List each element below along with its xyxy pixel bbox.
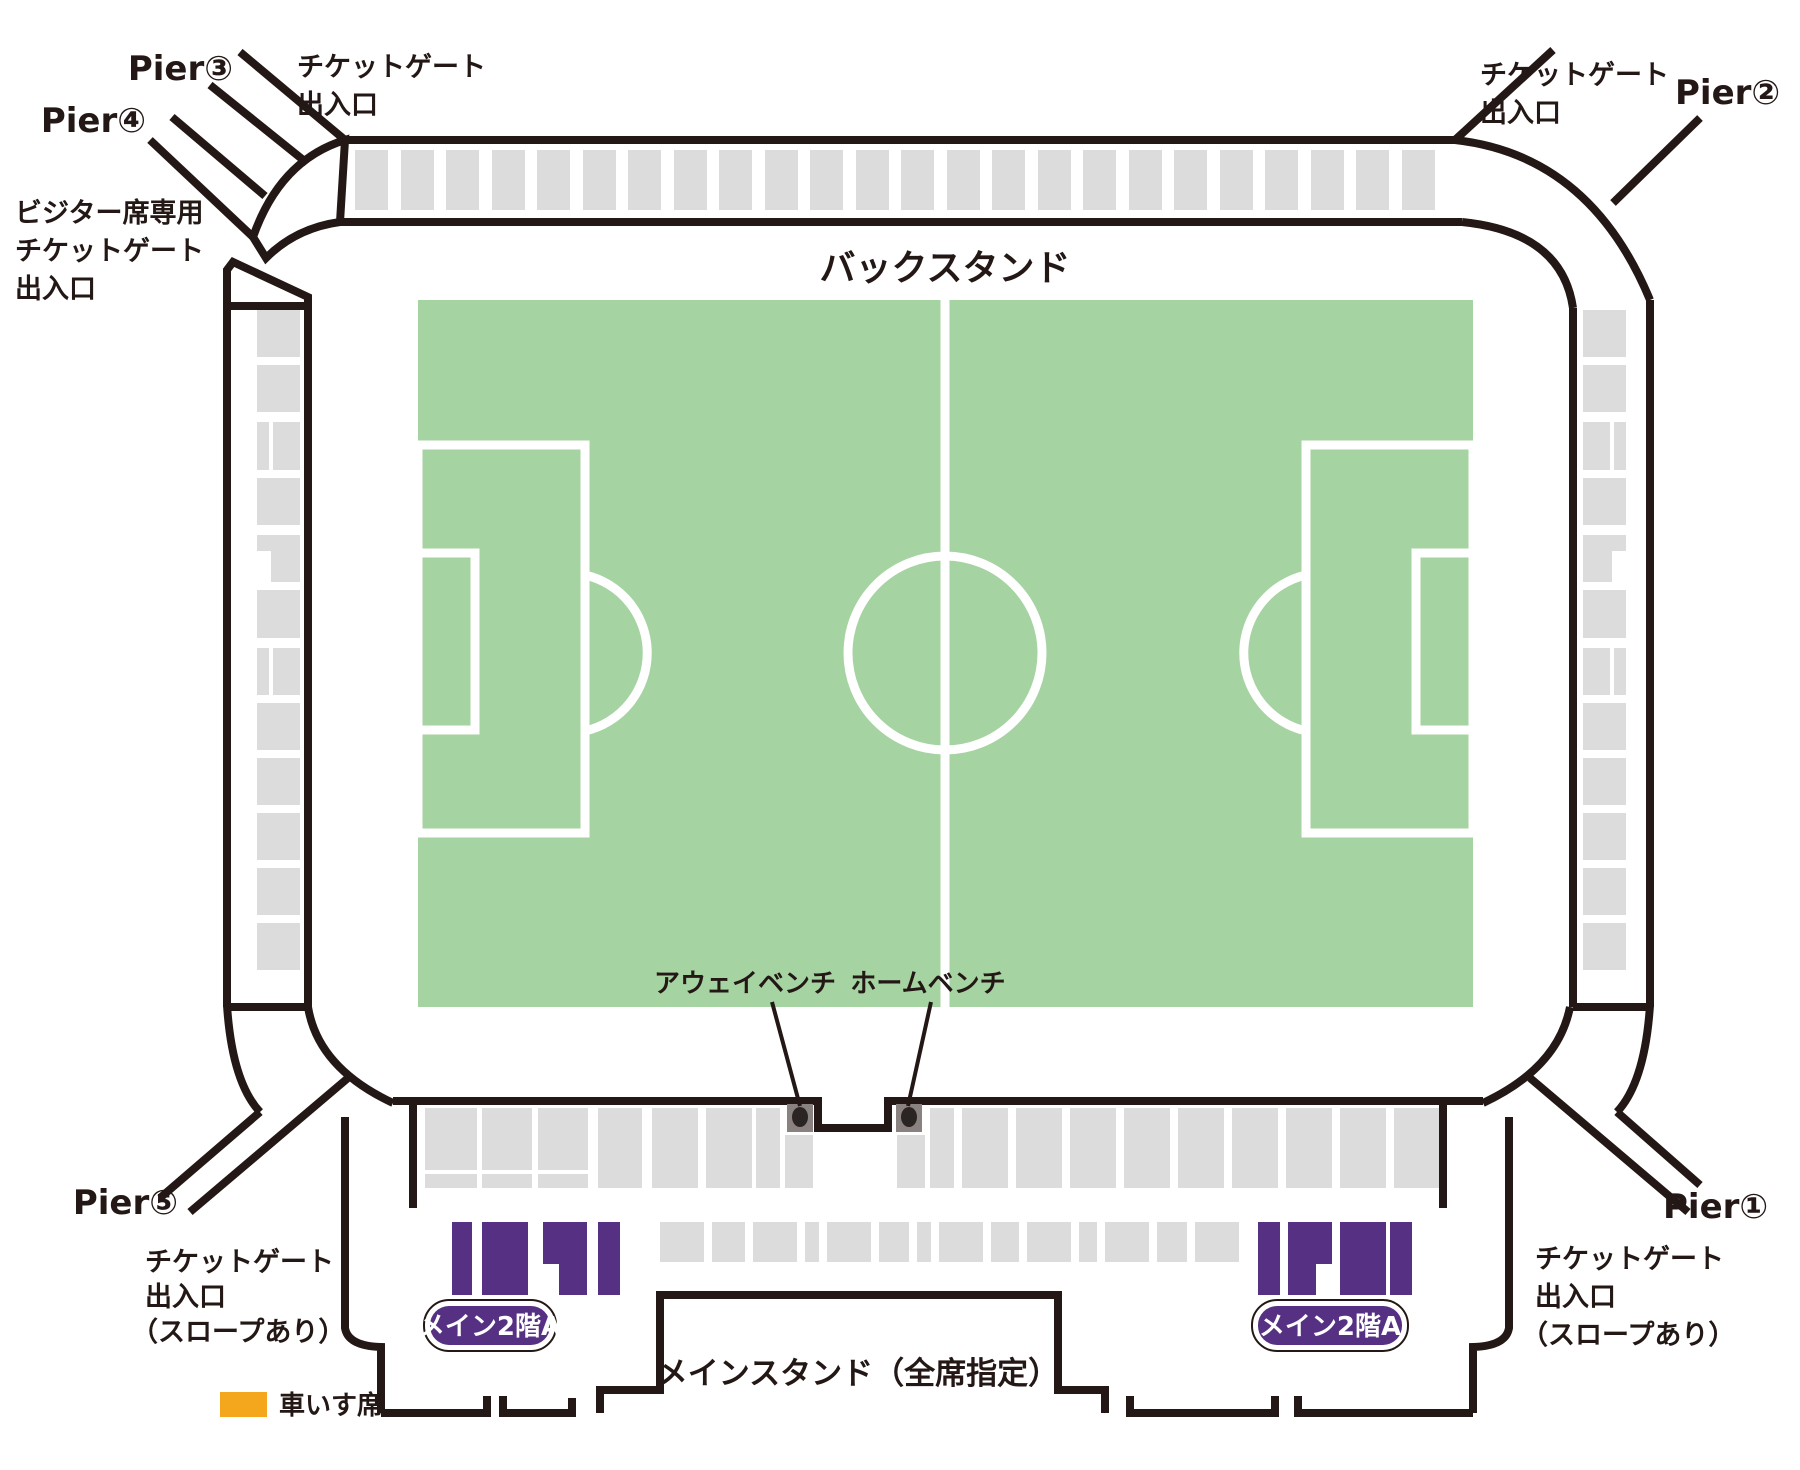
gate-label: 出入口 <box>15 274 96 305</box>
gate-label: チケットゲート <box>1535 1244 1724 1275</box>
main-stand-seat-block <box>482 1108 532 1170</box>
wheelchair-legend: 車いす席 <box>220 1390 383 1421</box>
main-stand-seat-block <box>1340 1108 1386 1188</box>
west-stand-seat-block <box>257 758 300 805</box>
east-stand-seat-block <box>1583 648 1610 695</box>
seat-block-notch <box>257 551 271 582</box>
main-2f-a-seat-block <box>452 1222 472 1295</box>
main-stand-seat-block <box>1016 1108 1062 1188</box>
back-stand-seat-block <box>674 150 707 210</box>
main-2f-a-seat-block <box>543 1222 587 1264</box>
main-2f-a-seat-block <box>482 1222 528 1295</box>
badge-label: メイン2階A <box>1259 1312 1401 1342</box>
away-bench-dot <box>792 1107 808 1127</box>
main-stand-seat-block <box>827 1222 871 1262</box>
main-stand-seat-block <box>1105 1222 1149 1262</box>
back-stand-seat-block <box>537 150 570 210</box>
main-stand-seat-block <box>706 1108 752 1188</box>
main-stand-seat-block <box>1232 1108 1278 1188</box>
east-stand-seat-block <box>1583 923 1626 970</box>
west-stand-seat-block <box>257 478 300 525</box>
east-stand-notch <box>1612 551 1626 582</box>
main-2f-a-badge-right: メイン2階A <box>1252 1300 1408 1351</box>
main-stand-seat-block <box>538 1174 588 1188</box>
main-stand-seat-block <box>1079 1222 1097 1262</box>
back-stand-seat-block <box>1220 150 1253 210</box>
back-stand-seat-block <box>1129 150 1162 210</box>
west-stand-seat-block <box>273 648 300 695</box>
main-stand-seat-block <box>805 1222 819 1262</box>
back-stand-seat-block <box>492 150 525 210</box>
home-bench-leader-line <box>908 1002 931 1106</box>
main-stand-seat-block <box>1070 1108 1116 1188</box>
main-2f-a-seat-block <box>1258 1222 1280 1295</box>
main-2f-a-badge-left: メイン2階A <box>419 1300 561 1351</box>
main-2f-a-seat-block <box>598 1222 620 1295</box>
back-stand-seat-block <box>1356 150 1389 210</box>
main-stand-seat-block <box>897 1135 925 1188</box>
gate-label: チケットゲート <box>145 1247 334 1278</box>
west-stand-seat-block <box>257 868 300 915</box>
main-stand-seat-block <box>962 1108 1008 1188</box>
main-stand-seat-block <box>917 1222 931 1262</box>
main-stand-seat-block <box>425 1108 477 1170</box>
back-stand-seat-block <box>1083 150 1116 210</box>
west-stand-seat-block <box>273 422 300 470</box>
gate-label: （スロープあり） <box>131 1317 345 1348</box>
west-stand-notch <box>257 551 271 582</box>
east-stand-seat-block <box>1614 422 1626 470</box>
pier3-label: Pier③ <box>128 49 233 89</box>
gate-label: 出入口 <box>1535 1282 1616 1313</box>
back-stand-seat-block <box>628 150 661 210</box>
back-stand-label: バックスタンド <box>820 248 1071 289</box>
main-stand-seat-block <box>785 1135 813 1188</box>
gate-visitor: ビジター席専用 チケットゲート 出入口 <box>15 197 204 305</box>
west-stand-seat-block <box>257 703 300 750</box>
gate-label: チケットゲート <box>297 52 486 83</box>
back-stand-seat-block <box>947 150 980 210</box>
main-stand-seat-block <box>712 1222 745 1262</box>
main-2f-a-seat-block <box>1288 1264 1316 1295</box>
back-stand-seat-block <box>992 150 1025 210</box>
east-stand-seat-block <box>1583 590 1626 638</box>
main-stand-seat-block <box>930 1108 954 1188</box>
east-stand-seat-block <box>1583 422 1610 470</box>
main-stand-seat-block <box>753 1222 797 1262</box>
east-stand-seat-block <box>1583 868 1626 915</box>
home-bench-dot <box>901 1107 917 1127</box>
west-stand-seat-block <box>257 648 269 695</box>
stadium-seating-map: メイン2階A メイン2階A 車いす席 Pier③ Pier④ Pier② Pie… <box>0 0 1800 1470</box>
west-stand-seat-block <box>257 923 300 970</box>
east-stand-seat-block <box>1583 310 1626 357</box>
gate-label: ビジター席専用 <box>15 197 203 229</box>
main-stand-label: メインスタンド（全席指定） <box>657 1356 1059 1392</box>
badge-label: メイン2階A <box>419 1312 561 1342</box>
back-stand-seat-block <box>583 150 616 210</box>
gate-label: （スロープあり） <box>1521 1320 1735 1351</box>
main-stand-seat-block <box>1157 1222 1187 1262</box>
gate-label: 出入口 <box>145 1282 226 1313</box>
main-stand-seat-block <box>1394 1108 1440 1188</box>
team-benches <box>772 1002 931 1132</box>
east-stand-seat-block <box>1583 758 1626 805</box>
main-stand-seat-block <box>598 1108 642 1188</box>
seat-block-notch <box>1612 551 1626 582</box>
main-2f-a-right-blocks <box>1258 1222 1412 1295</box>
wheelchair-swatch <box>220 1392 267 1417</box>
gate-top-left: チケットゲート 出入口 <box>297 52 486 121</box>
gate-label: チケットゲート <box>15 236 204 267</box>
main-stand-seat-block <box>1124 1108 1170 1188</box>
main-stand-tier1-blocks <box>425 1108 1440 1188</box>
main-2f-a-seat-block <box>1340 1222 1386 1295</box>
gate-bottom-left: チケットゲート 出入口 （スロープあり） <box>131 1247 345 1348</box>
back-stand-seat-block <box>810 150 843 210</box>
pier2-label: Pier② <box>1675 73 1780 113</box>
west-stand-seat-block <box>257 422 269 470</box>
east-stand-seat-block <box>1583 813 1626 860</box>
east-stand-seat-block <box>1583 365 1626 412</box>
pier1-label: Pier① <box>1663 1187 1768 1227</box>
main-stand-seat-block <box>939 1222 983 1262</box>
back-stand-seat-block <box>719 150 752 210</box>
main-2f-a-left-blocks <box>452 1222 620 1295</box>
gate-label: 出入口 <box>297 90 378 121</box>
main-2f-a-seat-block <box>559 1264 587 1295</box>
back-stand-seat-block <box>1311 150 1344 210</box>
west-stand-blocks <box>257 310 300 970</box>
pier5-label: Pier⑤ <box>73 1183 178 1223</box>
pier4-label: Pier④ <box>41 101 146 141</box>
wheelchair-label: 車いす席 <box>279 1390 383 1421</box>
back-stand-seat-block <box>1174 150 1207 210</box>
east-stand-seat-block <box>1583 478 1626 525</box>
back-stand-seat-block <box>901 150 934 210</box>
main-stand-seat-block <box>660 1222 704 1262</box>
main-stand-seat-block <box>652 1108 698 1188</box>
home-bench-label: ホームベンチ <box>850 969 1005 999</box>
gate-label: チケットゲート <box>1480 60 1669 91</box>
main-stand-seat-block <box>879 1222 909 1262</box>
back-stand-blocks <box>355 150 1435 210</box>
main-stand-seat-block <box>1027 1222 1071 1262</box>
east-stand-seat-block <box>1614 648 1626 695</box>
main-stand-seat-block <box>482 1174 532 1188</box>
gate-label: 出入口 <box>1480 98 1561 129</box>
back-stand-seat-block <box>401 150 434 210</box>
back-stand-seat-block <box>856 150 889 210</box>
west-stand-seat-block <box>257 365 300 412</box>
main-stand-seat-block <box>991 1222 1019 1262</box>
main-2f-a-seat-block <box>1390 1222 1412 1295</box>
back-stand-seat-block <box>1265 150 1298 210</box>
main-stand-seat-block <box>1178 1108 1224 1188</box>
back-stand-seat-block <box>1038 150 1071 210</box>
main-stand-tier2-blocks <box>660 1222 1239 1262</box>
main-stand-seat-block <box>1195 1222 1239 1262</box>
main-stand-seat-block <box>756 1108 780 1188</box>
back-stand-seat-block <box>355 150 388 210</box>
away-bench-label: アウェイベンチ <box>654 969 836 999</box>
main-stand-seat-block <box>538 1108 588 1170</box>
main-2f-a-seat-block <box>1288 1222 1332 1264</box>
pitch <box>418 300 1473 1007</box>
back-stand-seat-block <box>446 150 479 210</box>
west-stand-seat-block <box>257 590 300 638</box>
back-stand-seat-block <box>765 150 798 210</box>
west-stand-seat-block <box>257 310 300 357</box>
east-stand-blocks <box>1583 310 1626 970</box>
east-stand-seat-block <box>1583 703 1626 750</box>
west-stand-seat-block <box>257 813 300 860</box>
main-stand-seat-block <box>1286 1108 1332 1188</box>
back-stand-seat-block <box>1402 150 1435 210</box>
away-bench-leader-line <box>772 1002 800 1106</box>
main-stand-seat-block <box>425 1174 477 1188</box>
gate-bottom-right: チケットゲート 出入口 （スロープあり） <box>1521 1244 1735 1351</box>
